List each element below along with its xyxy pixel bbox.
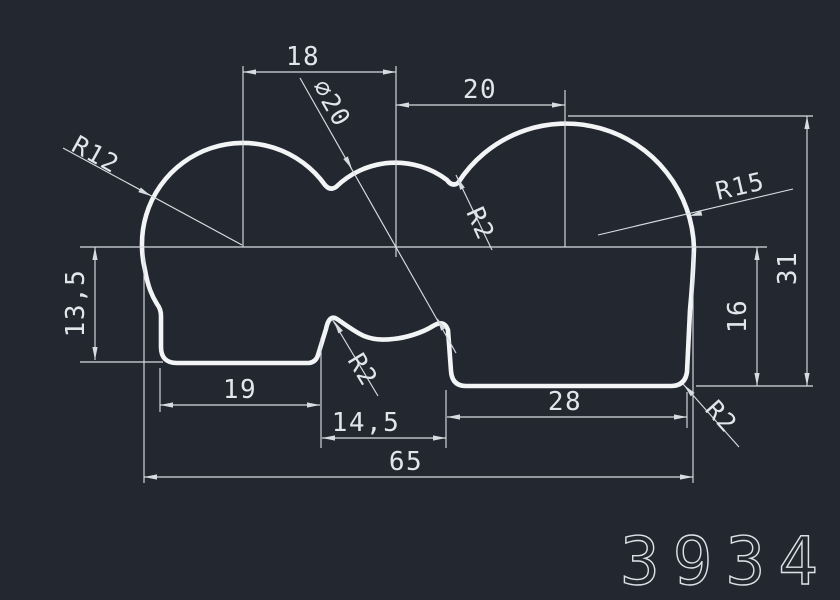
radius-r2-mid-label: R2	[461, 203, 501, 245]
dim-arrow	[383, 69, 396, 74]
dim-31[interactable]: 31	[773, 116, 810, 386]
dim-16-label: 16	[723, 299, 753, 333]
dim-18-label: 18	[286, 42, 320, 72]
dim-14-5-label: 14,5	[332, 408, 401, 438]
dim-14-5[interactable]: 14,5	[322, 408, 446, 441]
dim-18[interactable]: 18	[243, 42, 396, 75]
dim-arrow	[447, 414, 460, 419]
dim-arrow	[160, 402, 173, 407]
radius-r15-label: R15	[713, 166, 768, 205]
dim-arrow	[396, 102, 409, 107]
radius-r2-corner-label: R2	[700, 395, 744, 439]
dim-dia20[interactable]: ∅20	[300, 75, 456, 354]
part-outline[interactable]	[142, 124, 694, 386]
dim-arrow	[804, 373, 809, 386]
dim-arrow	[307, 402, 320, 407]
cad-canvas[interactable]: 18 20 ∅20 R12 R15 R2 R2	[0, 0, 840, 600]
radius-r2-notch-label: R2	[342, 348, 384, 391]
leader-line	[300, 78, 456, 353]
dim-20-label: 20	[463, 75, 497, 105]
dim-arrow	[343, 156, 354, 170]
extension-lines	[80, 66, 813, 483]
dim-arrow	[144, 474, 157, 479]
dim-31-label: 31	[773, 251, 803, 285]
dim-13-5-label: 13,5	[61, 269, 91, 338]
dim-arrow	[754, 373, 759, 386]
leader-line	[598, 189, 793, 235]
part-number: 3934	[620, 523, 831, 600]
dim-20[interactable]: 20	[396, 75, 565, 108]
dim-arrow	[804, 116, 809, 129]
dim-28-label: 28	[548, 387, 582, 417]
leader-r2-corner[interactable]: R2	[682, 383, 743, 447]
dim-arrow	[243, 69, 256, 74]
dim-arrow	[680, 474, 693, 479]
dim-19-label: 19	[223, 375, 257, 405]
dim-13-5[interactable]: 13,5	[61, 247, 98, 360]
dim-arrow	[433, 435, 446, 440]
dim-arrow	[92, 347, 97, 360]
dim-arrow	[552, 102, 565, 107]
dim-19[interactable]: 19	[160, 375, 320, 408]
dim-arrow	[92, 247, 97, 260]
leader-r2-mid[interactable]: R2	[455, 175, 501, 250]
dim-arrow	[754, 247, 759, 260]
cad-viewport: 18 20 ∅20 R12 R15 R2 R2	[0, 0, 840, 600]
leader-r15[interactable]: R15	[598, 166, 793, 235]
radius-r12-label: R12	[67, 130, 124, 179]
dim-arrow	[674, 414, 687, 419]
dim-arrow	[138, 188, 152, 199]
dim-65[interactable]: 65	[144, 447, 693, 480]
dim-65-label: 65	[389, 447, 423, 477]
dim-28[interactable]: 28	[447, 387, 687, 420]
dim-16[interactable]: 16	[723, 247, 760, 386]
